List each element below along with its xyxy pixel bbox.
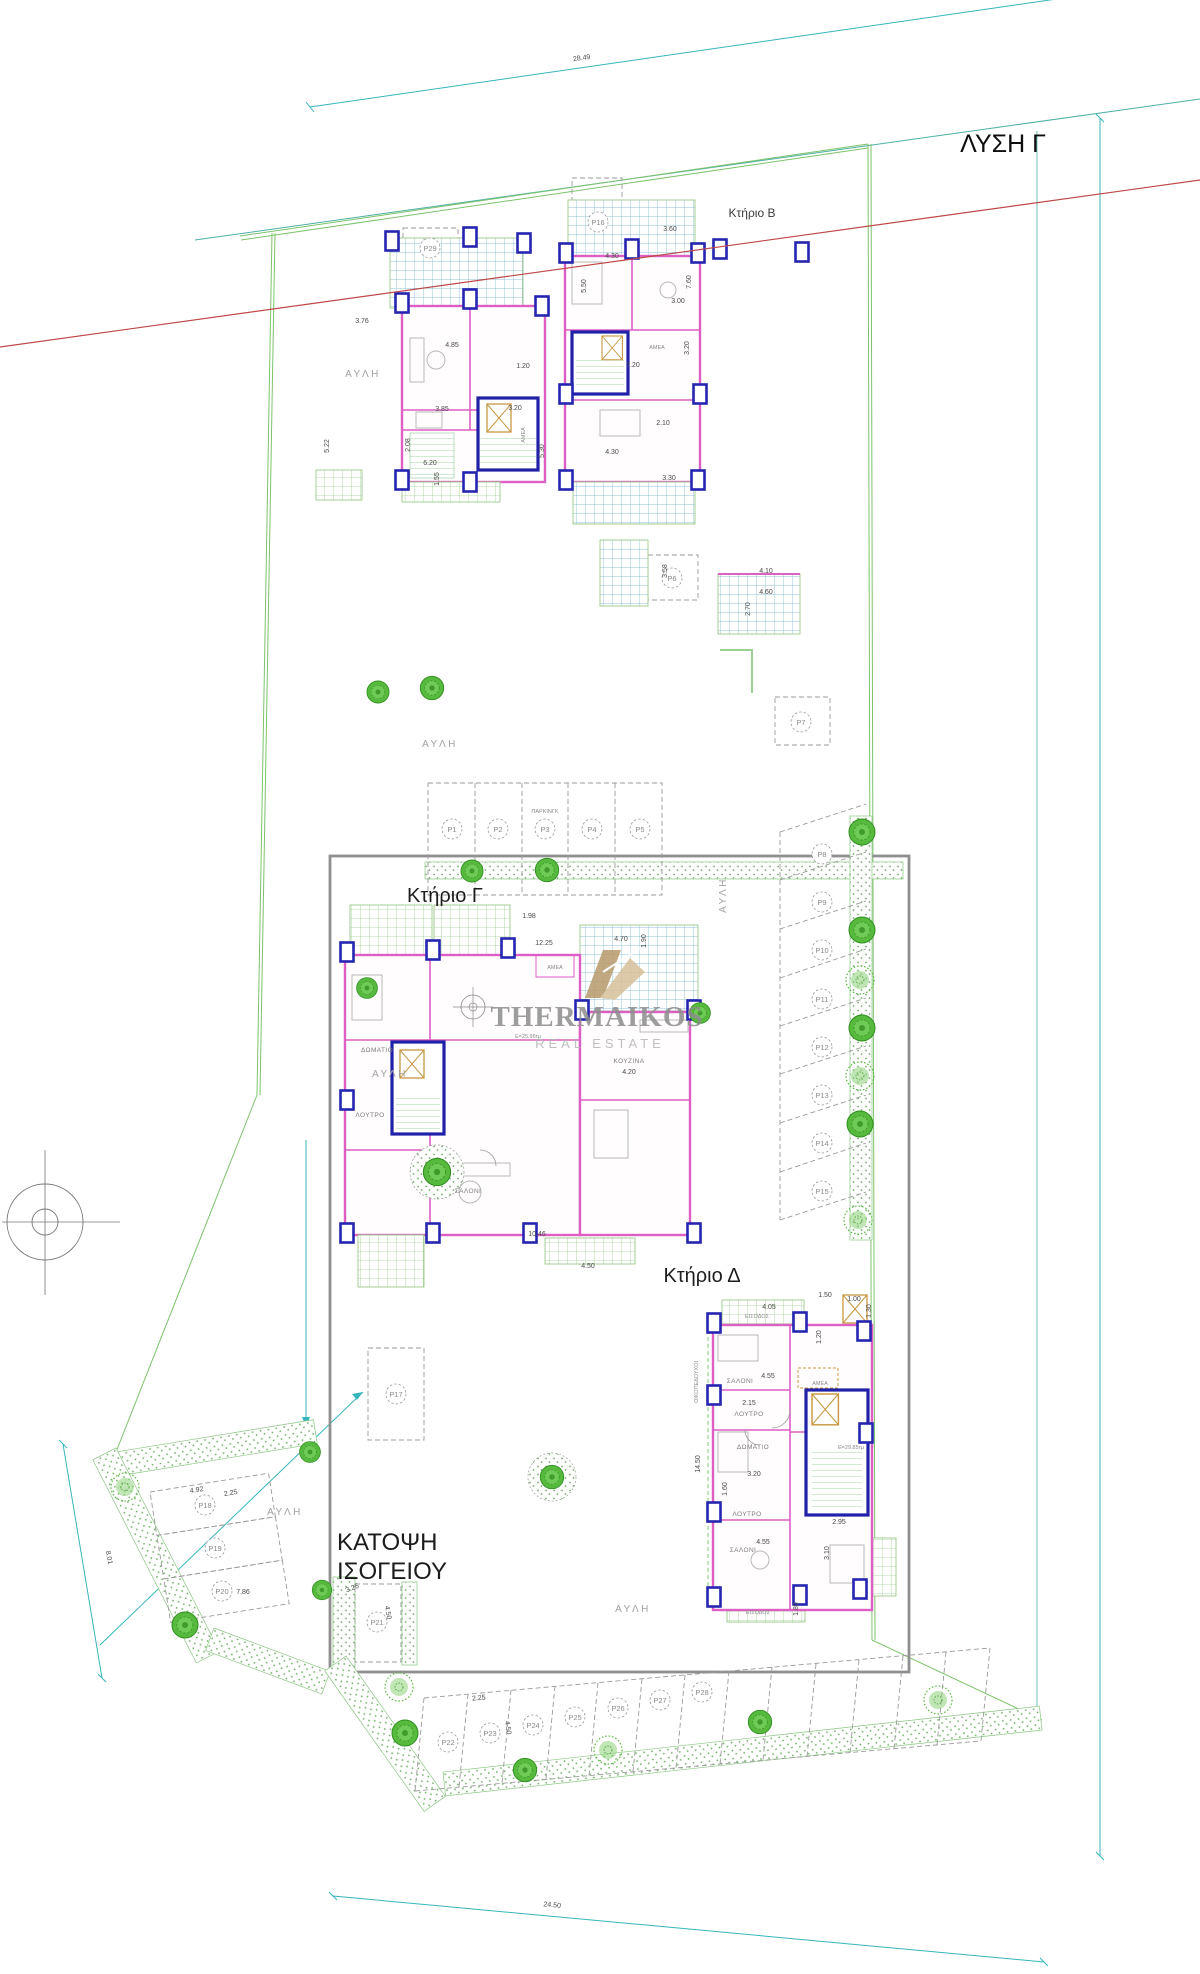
courtyard-label: ΑΥΛΗ [345,369,381,380]
parking-spot: P3 [535,819,555,839]
courtyard-label: ΑΥΛΗ [615,1604,651,1615]
svg-text:P22: P22 [441,1738,454,1747]
planter-circle [528,1453,576,1501]
dim-label: 3.76 [355,318,369,325]
parking-spot: P12 [812,1037,832,1057]
dim-label: 2.25 [472,1694,486,1702]
svg-text:P13: P13 [815,1091,828,1100]
svg-text:P12: P12 [815,1043,828,1052]
dim-label: 2.25 [223,1489,238,1498]
parking-spot: P14 [812,1133,832,1153]
dim-label: 2.10 [656,420,670,427]
parking-spot: P28 [692,1682,712,1702]
courtyard-label: ΑΥΛΗ [718,877,729,913]
parking-spot: P20 [212,1581,232,1601]
svg-text:P24: P24 [526,1721,539,1730]
dim-label: 1.55 [434,472,441,486]
parking-spot: P25 [565,1707,585,1727]
plan-caption-line2: ΙΣΟΓΕΙΟΥ [337,1558,447,1585]
svg-text:P3: P3 [540,825,549,834]
room-area-label: Ε=25.96τμ [515,1034,541,1040]
dim-label: 5.30 [539,444,546,458]
dim-label: 2.70 [745,602,752,616]
dim-label: 6.20 [423,460,437,467]
dim-label: 1.90 [641,934,648,948]
parking-spot: P18 [195,1495,215,1515]
solution-title: ΛΥΣΗ Γ [960,130,1046,158]
dim-label: 3.85 [435,406,449,413]
svg-text:P15: P15 [815,1187,828,1196]
survey-marker-icon [2,1150,120,1295]
dim-label: 4.92 [189,1486,204,1495]
site-plan-svg: ΠΑΡΚΙΝΓΚ [0,0,1200,1974]
parking-spot: P21 [367,1612,387,1632]
parking-spot: P26 [608,1698,628,1718]
room-label: ΕΙΣΟΔΟΣ [745,1314,770,1320]
dim-label: 3.20 [747,1471,761,1478]
dim-label: 1.98 [522,913,536,920]
parking-spot: P9 [812,892,832,912]
svg-text:P11: P11 [816,995,829,1004]
svg-text:P28: P28 [695,1688,708,1697]
room-label: ΚΟΥΖΙΝΑ [614,1058,645,1065]
dim-label: 1.20 [816,1330,823,1344]
dim-label: 2.95 [832,1519,846,1526]
svg-text:P19: P19 [208,1544,221,1553]
brand-tagline: REAL ESTATE [535,1036,665,1051]
dim-label: 3.20 [684,341,691,355]
svg-text:P25: P25 [568,1713,581,1722]
room-label: ΛΟΥΤΡΟ [734,1411,763,1418]
building-d-plan [708,1295,897,1622]
dim-label: 4.05 [762,1304,776,1311]
dim-label: 1.60 [722,1482,729,1496]
room-area-label: Ε=29.85τμ [838,1445,864,1451]
dim-label: 2.15 [742,1400,756,1407]
svg-text:P14: P14 [815,1139,828,1148]
svg-text:P9: P9 [817,898,826,907]
svg-text:P20: P20 [215,1587,228,1596]
brand-name: THERMAIKOS [490,1001,703,1033]
courtyard-label: ΑΥΛΗ [422,739,458,750]
dim-label: 3.10 [824,1546,831,1560]
dim-label: 4.55 [756,1539,770,1546]
room-label: ΛΟΥΤΡΟ [732,1511,761,1518]
parking-spot: P1 [442,819,462,839]
parking-spot: P4 [582,819,602,839]
dim-label: 4.50 [581,1263,595,1270]
room-label: ΑΜΕΑ [547,965,563,971]
svg-text:P8: P8 [817,850,826,859]
dim-label: 3.60 [663,226,677,233]
parking-spot: P2 [488,819,508,839]
dim-label: 2.08 [405,438,412,452]
dim-label: 4.10 [759,568,773,575]
dim-label: 4.50 [503,1721,512,1736]
parking-spot: P17 [386,1384,406,1404]
dim-label: 4.20 [622,1069,636,1076]
dim-label: 5.22 [324,439,331,453]
dim-label: 7.86 [236,1589,250,1596]
svg-text:P23: P23 [483,1729,496,1738]
dim-label: 4.55 [761,1373,775,1380]
parking-spot: P8 [812,844,832,864]
parking-spot: P27 [650,1690,670,1710]
dim-label: 3.20 [508,405,522,412]
dim-label: 24.50 [543,1901,561,1910]
svg-text:P26: P26 [611,1704,624,1713]
room-label: ΑΜΕΑ [521,427,527,443]
building-b-label: Κτήριο Β [729,206,776,220]
svg-text:P4: P4 [587,825,596,834]
parking-spot: P5 [630,819,650,839]
parking-spot: P15 [812,1181,832,1201]
parking-spot: P7 [791,712,811,732]
dim-label: 4.60 [759,589,773,596]
parking-spot: P19 [205,1538,225,1558]
dim-label: 3.30 [662,475,676,482]
dim-label: 4.70 [614,936,628,943]
dim-label: 5.50 [581,279,588,293]
parking-spot: P24 [523,1715,543,1735]
dim-label: 4.30 [605,449,619,456]
dim-label: 10.46 [528,1231,546,1238]
dim-label: 3.00 [671,298,685,305]
dim-label: 7.60 [686,275,693,289]
dim-label: 1.80 [793,1602,800,1616]
room-label: ΔΩΜΑΤΙΟ [737,1444,769,1451]
floor-plan-sheet: ΠΑΡΚΙΝΓΚ [0,0,1200,1974]
svg-text:P27: P27 [653,1696,666,1705]
svg-text:P29: P29 [423,244,436,253]
dim-label: 4.30 [605,253,619,260]
room-label: ΣΑΛΟΝΙ [455,1188,482,1195]
svg-text:P2: P2 [493,825,502,834]
room-label: ΔΩΜΑΤΙΟ [361,1047,393,1054]
dim-label: 4.85 [445,342,459,349]
dim-label: 3.58 [662,564,669,578]
building-c-plan [341,905,701,1287]
parking-spot: P11 [812,989,832,1009]
dim-label: 1.30 [866,1304,873,1318]
svg-text:P1: P1 [447,825,456,834]
room-label: ΑΜΕΑ [812,1381,828,1387]
dim-label: 1.00 [847,1296,861,1303]
courtyard-label: ΑΥΛΗ [372,1069,408,1080]
svg-text:P17: P17 [389,1390,402,1399]
svg-text:P16: P16 [591,218,604,227]
building-c-label: Κτήριο Γ [407,885,483,907]
room-label: ΣΑΛΟΝΙ [727,1378,754,1385]
dim-label: 7.20 [626,362,640,369]
dim-label: 8.01 [104,1550,114,1565]
svg-text:P10: P10 [815,946,828,955]
room-label: ΛΟΥΤΡΟ [355,1112,384,1119]
svg-text:P5: P5 [635,825,644,834]
parking-spot: P22 [438,1732,458,1752]
building-d-label: Κτήριο Δ [663,1265,740,1287]
svg-text:P21: P21 [370,1618,383,1627]
dim-label: 1.20 [516,363,530,370]
courtyard-label: ΑΥΛΗ [267,1507,303,1518]
room-label: ΕΙΣΟΔΟΣ [746,1610,771,1616]
parking-spot: P16 [588,212,608,232]
room-label: ΣΑΛΟΝΙ [730,1547,757,1554]
room-label: ΑΜΕΑ [649,345,665,351]
dim-label: 14.50 [695,1455,702,1473]
parking-spot: P29 [420,238,440,258]
dim-label: 1.50 [818,1292,832,1299]
parking-spot: P10 [812,940,832,960]
owners-label: ΟΙΚΟΠΕΔΟΥΧΟΙ [694,1361,700,1403]
parking-spot: P23 [480,1723,500,1743]
parking-spot: P13 [812,1085,832,1105]
svg-text:P18: P18 [198,1501,211,1510]
dim-label: 12.25 [535,940,553,947]
svg-text:P7: P7 [796,718,805,727]
plan-caption-line1: ΚΑΤΟΨΗ [337,1529,438,1556]
dim-label: 28.49 [573,54,591,63]
